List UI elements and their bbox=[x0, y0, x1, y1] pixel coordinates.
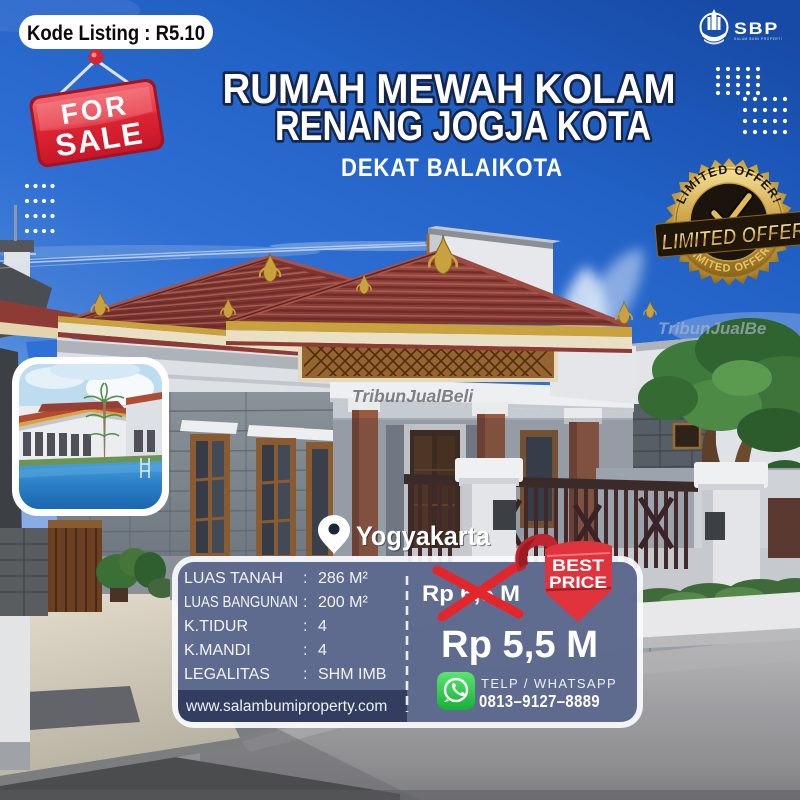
svg-text:PRICE: PRICE bbox=[549, 573, 607, 592]
svg-text:LUAS BANGUNAN: LUAS BANGUNAN bbox=[184, 594, 298, 611]
svg-text:DEKAT BALAIKOTA: DEKAT BALAIKOTA bbox=[341, 154, 563, 182]
svg-text::: : bbox=[303, 594, 307, 611]
svg-text:Yogyakarta: Yogyakarta bbox=[356, 521, 491, 551]
svg-text:RENANG JOGJA KOTA: RENANG JOGJA KOTA bbox=[275, 102, 651, 149]
svg-text::: : bbox=[303, 570, 307, 587]
svg-text::: : bbox=[303, 642, 307, 659]
svg-text:LUAS TANAH: LUAS TANAH bbox=[184, 570, 283, 587]
svg-text::: : bbox=[303, 666, 307, 683]
svg-text:Kode Listing : R5.10: Kode Listing : R5.10 bbox=[27, 22, 205, 45]
svg-text:K.MANDI: K.MANDI bbox=[184, 642, 251, 659]
svg-text::: : bbox=[303, 618, 307, 635]
svg-text:K.TIDUR: K.TIDUR bbox=[184, 618, 248, 635]
svg-text:SBP: SBP bbox=[734, 19, 779, 38]
svg-text:Rp 5,5 M: Rp 5,5 M bbox=[441, 624, 598, 666]
svg-text:www.salambumiproperty.com: www.salambumiproperty.com bbox=[185, 698, 387, 715]
svg-text:LEGALITAS: LEGALITAS bbox=[184, 666, 270, 683]
svg-text:286 M²: 286 M² bbox=[318, 570, 368, 587]
svg-text:TribunJualBe: TribunJualBe bbox=[658, 319, 766, 338]
svg-text:TELP / WHATSAPP: TELP / WHATSAPP bbox=[481, 676, 617, 691]
svg-text:TribunJualBeli: TribunJualBeli bbox=[352, 386, 474, 406]
svg-text:0813–9127–8889: 0813–9127–8889 bbox=[479, 691, 600, 711]
svg-text:4: 4 bbox=[318, 642, 327, 659]
svg-text:SALAM BUMI PROPERTI: SALAM BUMI PROPERTI bbox=[734, 37, 782, 41]
svg-text:200 M²: 200 M² bbox=[318, 594, 368, 611]
svg-text:4: 4 bbox=[318, 618, 327, 635]
svg-text:SHM IMB: SHM IMB bbox=[318, 666, 386, 683]
